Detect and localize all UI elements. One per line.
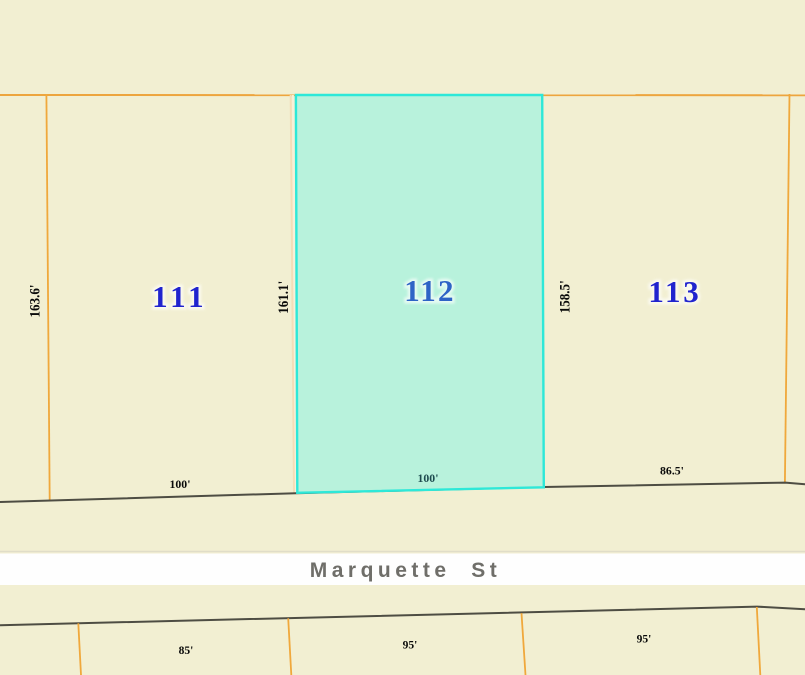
svg-text:111: 111: [152, 279, 208, 314]
svg-text:Marquette St: Marquette St: [310, 559, 502, 582]
svg-text:158.5': 158.5': [557, 280, 573, 313]
svg-text:85': 85': [179, 645, 194, 657]
svg-text:100': 100': [418, 471, 439, 485]
svg-text:95': 95': [403, 640, 418, 652]
svg-text:112: 112: [404, 273, 455, 308]
svg-text:100': 100': [170, 477, 191, 491]
svg-text:163.6': 163.6': [27, 285, 43, 318]
svg-text:161.1': 161.1': [276, 281, 292, 314]
svg-text:95': 95': [637, 634, 652, 646]
svg-text:86.5': 86.5': [660, 464, 684, 478]
svg-text:113: 113: [648, 274, 701, 309]
